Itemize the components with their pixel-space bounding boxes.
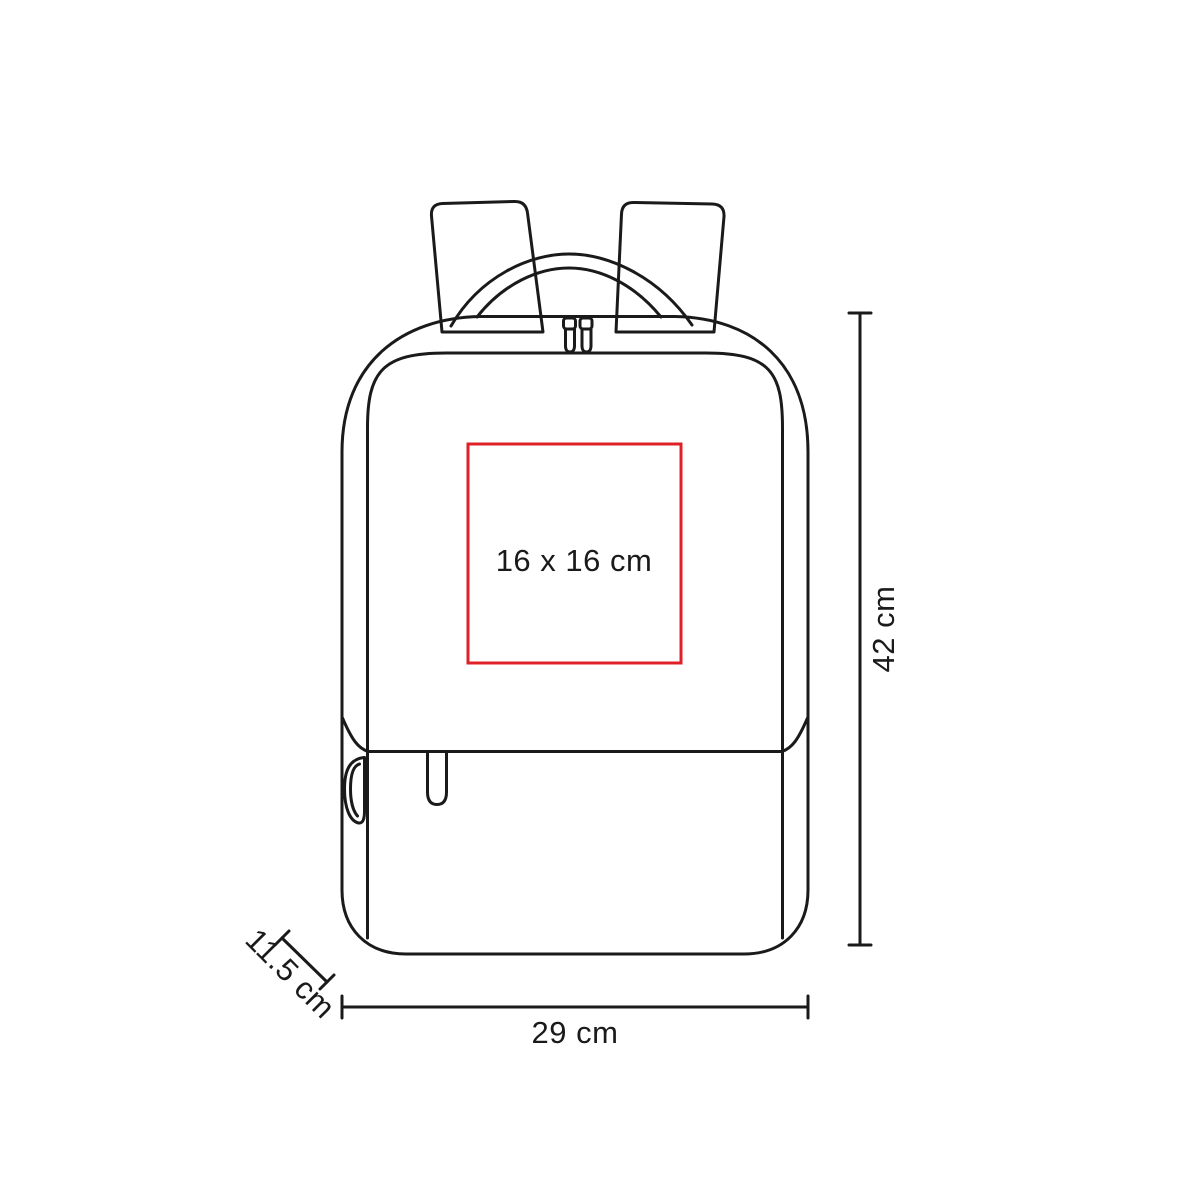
handle-inner-curve [477, 268, 661, 317]
width-dimension: 29 cm [342, 996, 808, 1050]
front-pocket [343, 718, 808, 805]
zipper-tab-left [566, 329, 575, 352]
pocket-zipper-line [343, 718, 808, 752]
backpack-straps [431, 201, 724, 332]
side-loop [345, 758, 365, 824]
width-dimension-label: 29 cm [532, 1015, 619, 1050]
pocket-zipper-pull [428, 752, 447, 805]
depth-dimension: 11.5 cm [239, 922, 343, 1026]
height-dimension: 42 cm [849, 313, 901, 945]
zipper-tab-right [582, 329, 591, 352]
backpack-dimension-diagram: 16 x 16 cm 42 cm 29 cm [0, 0, 1200, 1200]
front-panel-seam [368, 353, 783, 938]
left-strap [431, 201, 543, 332]
side-loop-inner-line [351, 764, 360, 816]
main-zipper-pulls [564, 318, 593, 352]
right-strap [616, 202, 724, 332]
backpack-body-outline [342, 317, 808, 955]
zipper-slider-right [580, 318, 592, 329]
imprint-area: 16 x 16 cm [468, 444, 681, 663]
diagram-canvas: 16 x 16 cm 42 cm 29 cm [0, 0, 1200, 1200]
depth-dimension-label: 11.5 cm [239, 922, 343, 1026]
height-dimension-label: 42 cm [866, 586, 901, 673]
dimension-annotations: 42 cm 29 cm 11.5 cm [239, 313, 901, 1050]
zipper-slider-left [564, 318, 576, 329]
imprint-area-label: 16 x 16 cm [496, 543, 653, 578]
